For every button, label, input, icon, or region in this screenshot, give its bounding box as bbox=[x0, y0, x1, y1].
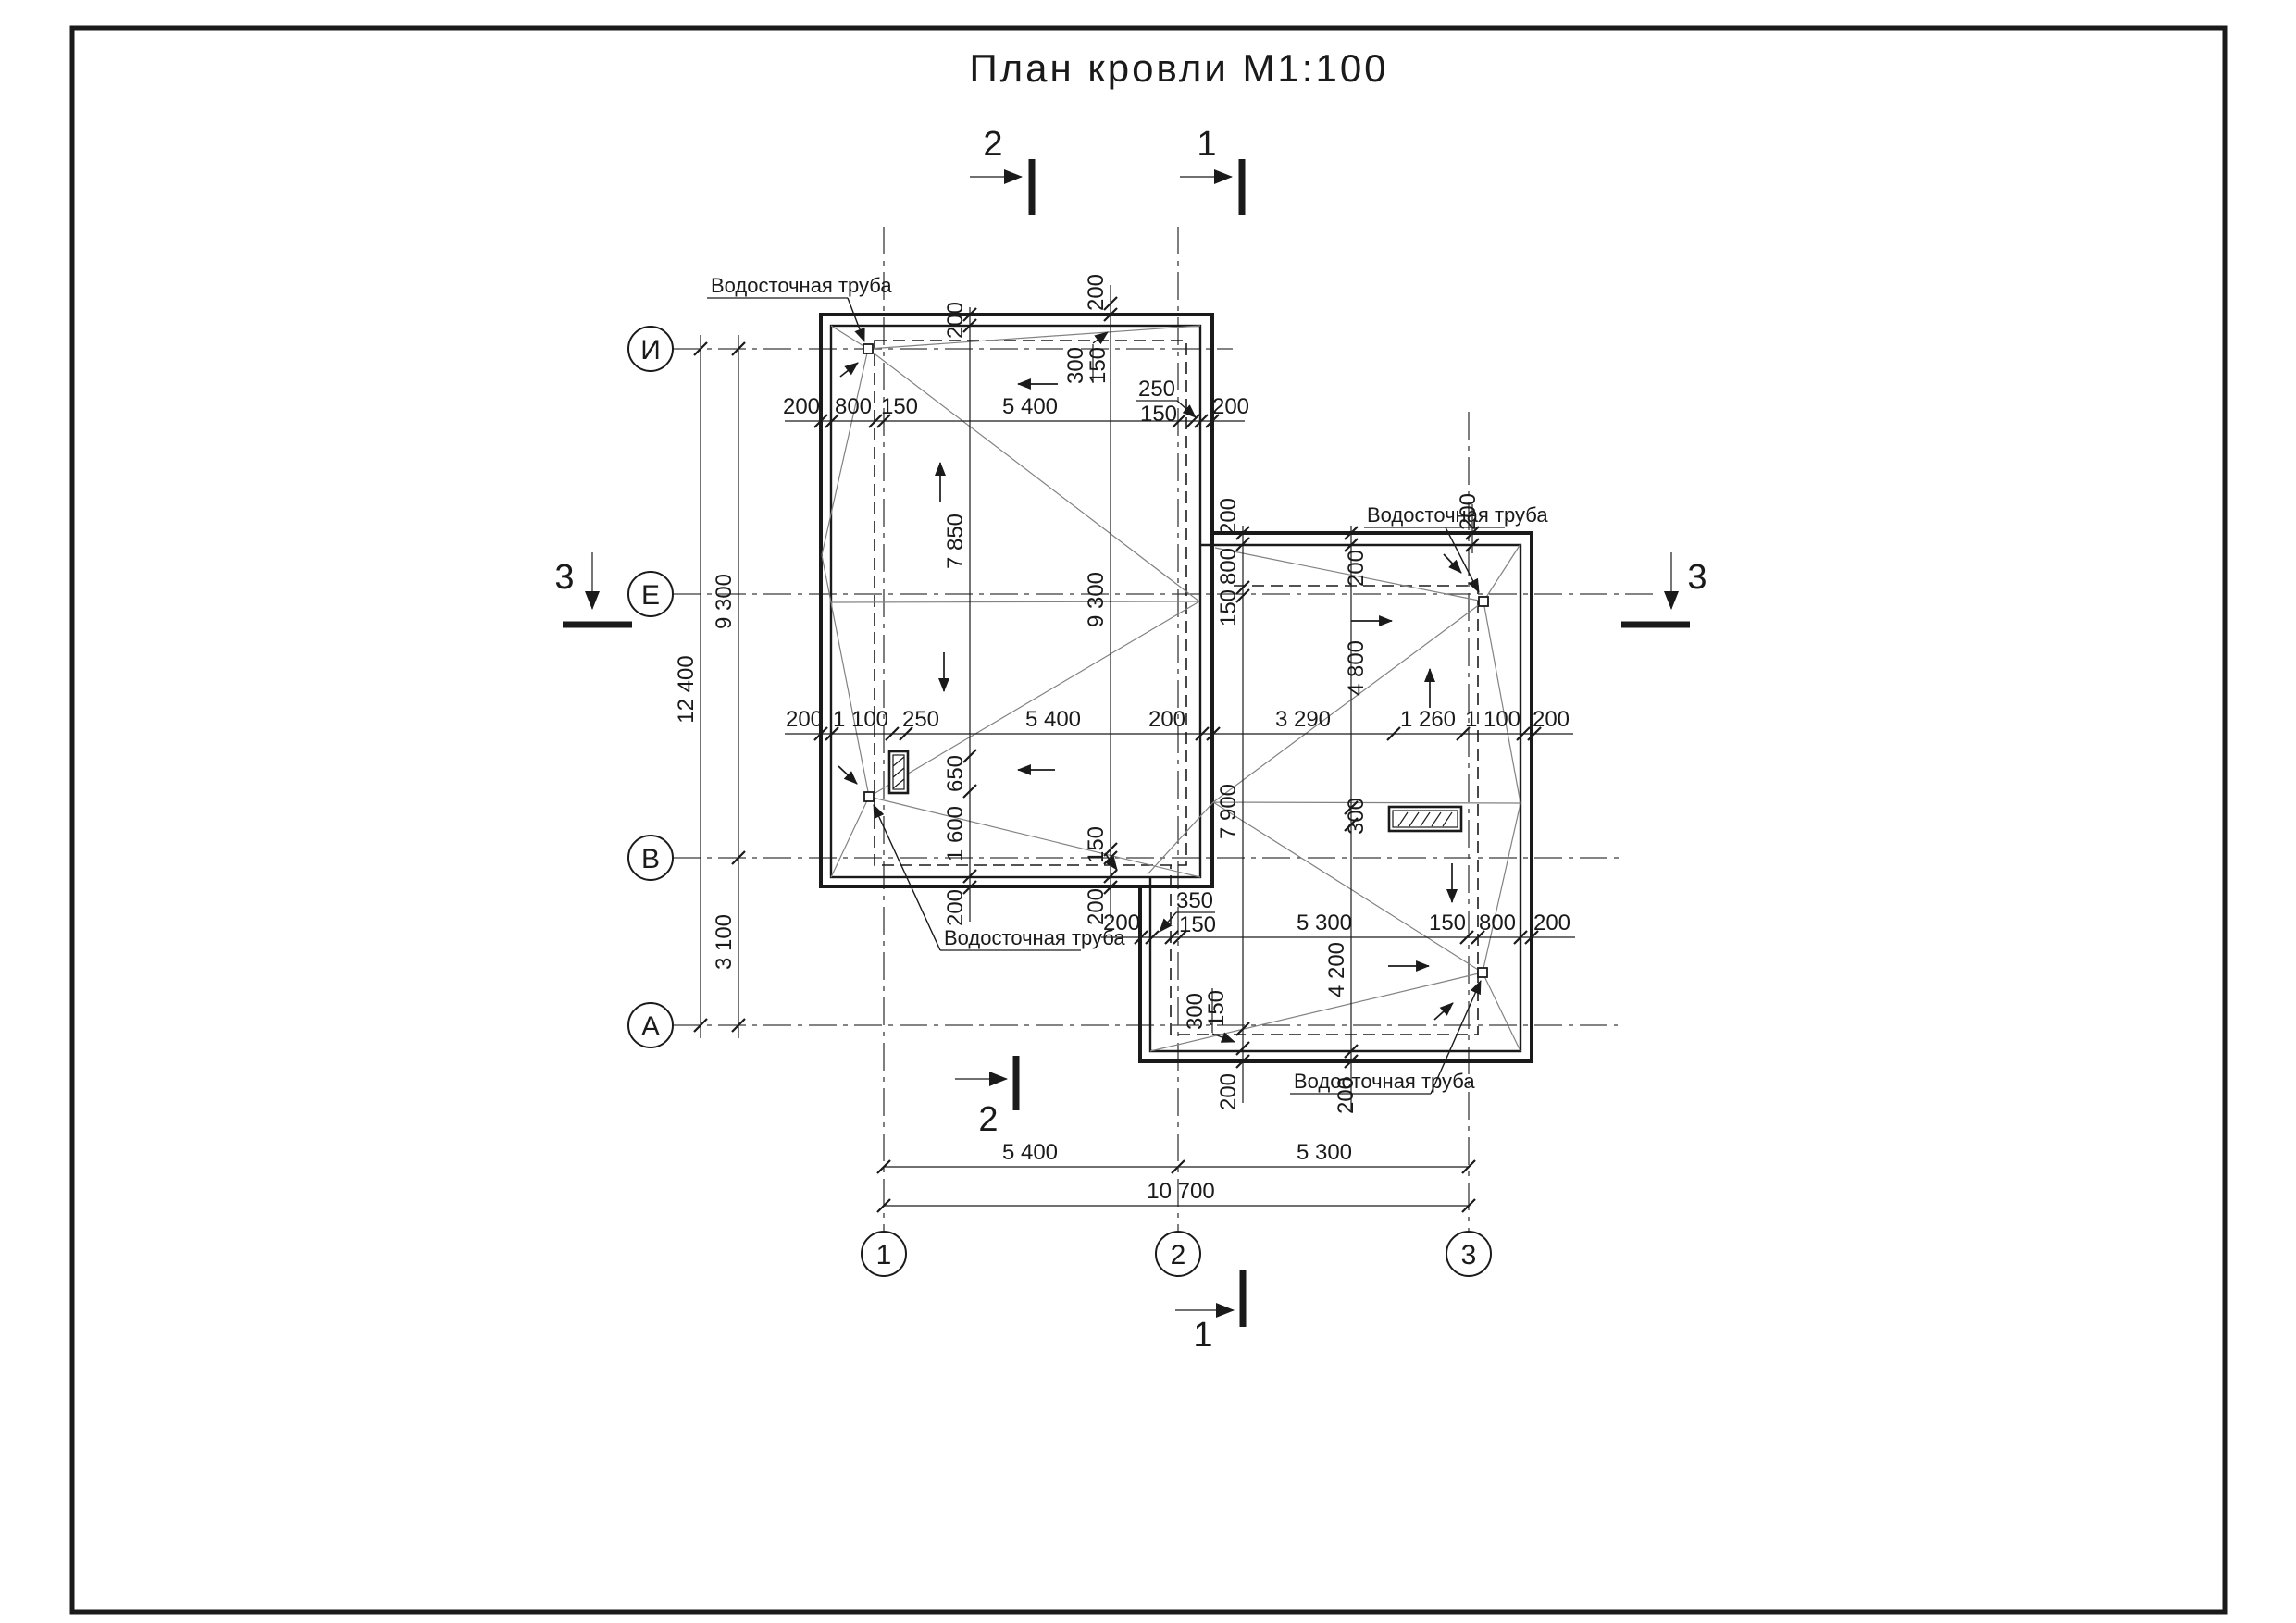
drainpipe-label-top-left: Водосточная труба bbox=[711, 274, 892, 297]
axis-row-a-label: А bbox=[641, 1011, 660, 1042]
dim: 150 bbox=[1216, 589, 1241, 626]
svg-text:2: 2 bbox=[978, 1100, 998, 1139]
dim: 200 bbox=[1148, 707, 1185, 732]
dim: 1 100 bbox=[833, 707, 888, 732]
dim-lower-height: 3 100 bbox=[712, 914, 737, 970]
dim: 1 100 bbox=[1465, 707, 1520, 732]
dim: 300 bbox=[1344, 798, 1369, 835]
dim: 1 260 bbox=[1400, 707, 1456, 732]
svg-text:1: 1 bbox=[1193, 1316, 1212, 1355]
section-mark-top-2: 2 bbox=[970, 125, 1032, 215]
dim-callout: 300 bbox=[1063, 347, 1088, 384]
dim: 4 800 bbox=[1344, 640, 1369, 696]
dim: 800 bbox=[835, 394, 872, 419]
axis-row-i-label: И bbox=[640, 335, 661, 365]
drainpipe-label-bottom-right: Водосточная труба bbox=[1294, 1070, 1475, 1093]
dim: 250 bbox=[902, 707, 939, 732]
dim: 150 bbox=[1429, 911, 1466, 935]
dim-callout: 150 bbox=[1204, 990, 1229, 1027]
dim-callout: 150 bbox=[1140, 402, 1177, 427]
dim: 5 300 bbox=[1297, 911, 1352, 935]
dim: 9 300 bbox=[1084, 572, 1109, 627]
dim: 4 200 bbox=[1324, 942, 1349, 997]
dim: 150 bbox=[1084, 826, 1109, 863]
dim: 650 bbox=[943, 755, 968, 792]
dim: 800 bbox=[1216, 548, 1241, 585]
svg-text:2: 2 bbox=[983, 125, 1002, 164]
roof-drain-bottom-left bbox=[864, 792, 874, 801]
dim-callout: 150 bbox=[1086, 347, 1111, 384]
axis-col-2-label: 2 bbox=[1171, 1240, 1186, 1270]
drainpipe-label-bottom-left: Водосточная труба bbox=[944, 926, 1125, 949]
svg-text:3: 3 bbox=[554, 558, 574, 597]
dim-callout: 250 bbox=[1138, 377, 1175, 402]
dim: 150 bbox=[881, 394, 918, 419]
dim: 800 bbox=[1479, 911, 1516, 935]
dim-span-2-3: 5 300 bbox=[1297, 1140, 1352, 1165]
dim: 5 400 bbox=[1025, 707, 1081, 732]
dim: 7 850 bbox=[943, 514, 968, 569]
section-marks: 2 1 2 1 3 3 bbox=[554, 125, 1706, 1355]
dim: 200 bbox=[943, 889, 968, 926]
dim: 3 290 bbox=[1275, 707, 1331, 732]
dim: 200 bbox=[1533, 707, 1570, 732]
drainpipe-callouts: Водосточная труба Водосточная труба Водо… bbox=[707, 274, 1548, 1094]
section-mark-bottom-2: 2 bbox=[955, 1056, 1016, 1139]
roof-drain-top-right bbox=[1479, 597, 1488, 606]
sheet-frame bbox=[72, 28, 2225, 1612]
dim-callout: 350 bbox=[1176, 888, 1213, 913]
roof-drain-top-left bbox=[863, 344, 873, 353]
dim-upper-height: 9 300 bbox=[712, 574, 737, 629]
dim: 200 bbox=[1216, 498, 1241, 535]
dim: 1 600 bbox=[943, 806, 968, 861]
dim-total-height: 12 400 bbox=[674, 655, 699, 723]
svg-text:1: 1 bbox=[1197, 125, 1216, 164]
dim-span-1-2: 5 400 bbox=[1002, 1140, 1058, 1165]
page-title: План кровли М1:100 bbox=[969, 46, 1388, 90]
axis-row-v-label: В bbox=[641, 844, 660, 874]
axis-col-1-label: 1 bbox=[876, 1240, 892, 1270]
dim: 200 bbox=[1216, 1073, 1241, 1110]
dim: 5 400 bbox=[1002, 394, 1058, 419]
dimension-labels: 12 400 9 300 3 100 200 800 150 5 400 200… bbox=[674, 274, 1570, 1204]
dim: 7 900 bbox=[1216, 784, 1241, 839]
dim: 200 bbox=[1212, 394, 1249, 419]
section-mark-left-3: 3 bbox=[554, 552, 632, 625]
section-mark-right-3: 3 bbox=[1621, 552, 1707, 625]
dim-callout: 150 bbox=[1179, 912, 1216, 937]
dim: 200 bbox=[1533, 911, 1570, 935]
drawing-sheet: План кровли М1:100 И Е В А 1 2 3 bbox=[0, 0, 2296, 1623]
dim: 200 bbox=[1344, 550, 1369, 587]
vent-shaft-right bbox=[1389, 807, 1461, 831]
section-mark-bottom-1: 1 bbox=[1175, 1270, 1243, 1355]
drainpipe-label-top-right: Водосточная труба bbox=[1367, 503, 1548, 527]
dim-total-width: 10 700 bbox=[1147, 1179, 1214, 1204]
axis-row-e-label: Е bbox=[641, 580, 660, 611]
axis-col-3-label: 3 bbox=[1461, 1240, 1477, 1270]
dim: 200 bbox=[783, 394, 820, 419]
vent-shaft-left bbox=[889, 751, 908, 793]
section-mark-top-1: 1 bbox=[1180, 125, 1242, 215]
dim: 200 bbox=[1084, 274, 1109, 311]
dim: 200 bbox=[943, 302, 968, 339]
dim: 200 bbox=[786, 707, 823, 732]
roof-drain-bottom-right bbox=[1478, 968, 1487, 977]
svg-text:3: 3 bbox=[1687, 558, 1706, 597]
